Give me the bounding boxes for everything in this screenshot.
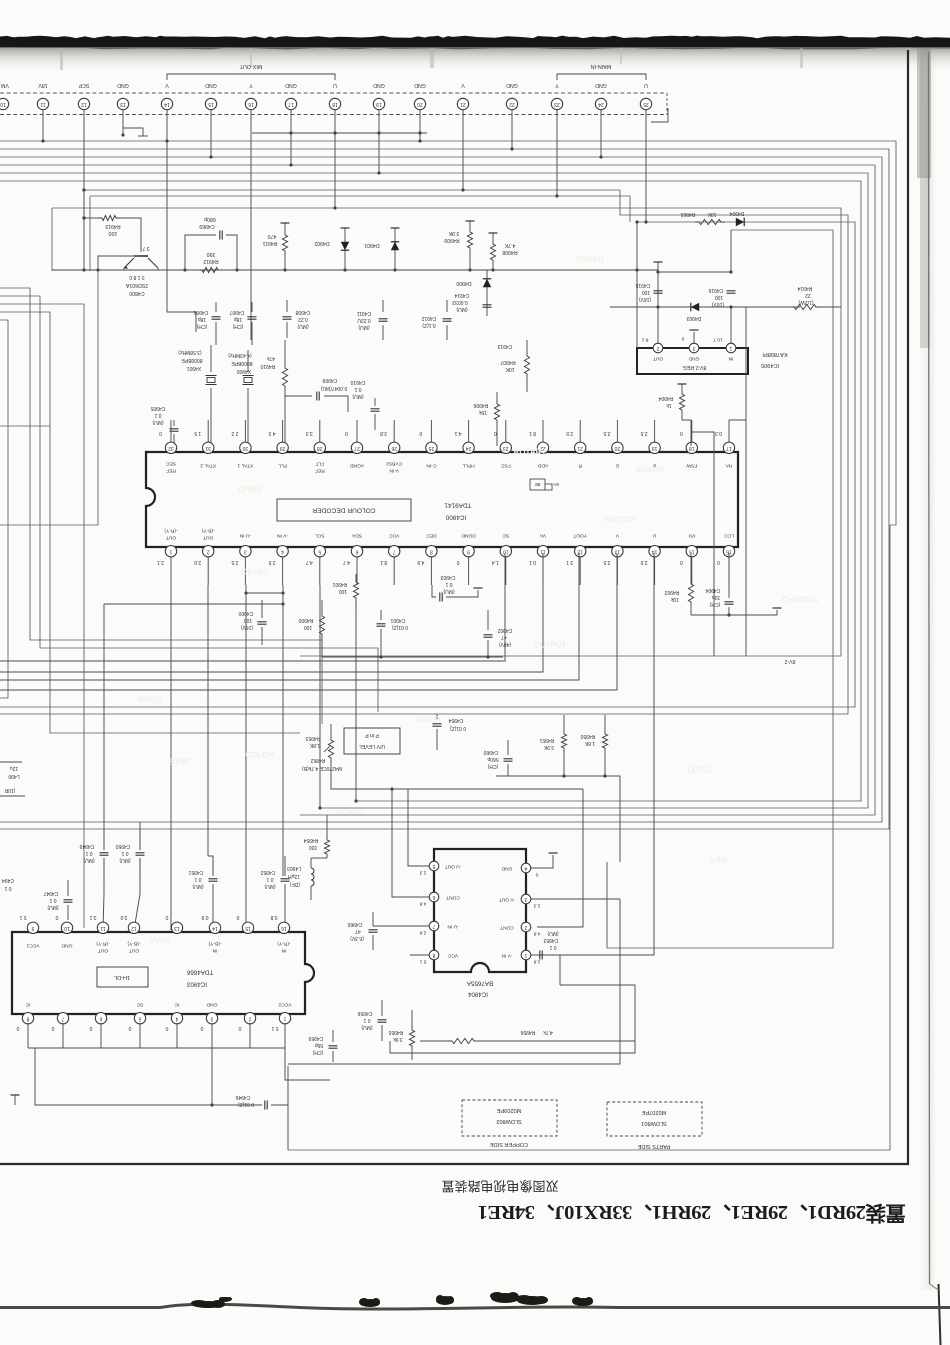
svg-text:4.8: 4.8	[533, 931, 540, 937]
svg-text:IC: IC	[174, 1002, 179, 1008]
svg-text:(MU): (MU)	[47, 904, 58, 910]
svg-text:0.1(Z): 0.1(Z)	[422, 322, 436, 328]
svg-text:0.3: 0.3	[715, 430, 722, 436]
svg-text:8: 8	[430, 548, 433, 554]
svg-text:-(R-Y): -(R-Y)	[164, 528, 178, 534]
svg-text:M4270CE 4.7k(B): M4270CE 4.7k(B)	[302, 765, 342, 771]
svg-text:双图像电视电路装置: 双图像电视电路装置	[441, 1179, 558, 1194]
svg-text:6: 6	[432, 894, 435, 900]
svg-text:GND: GND	[688, 356, 699, 362]
svg-text:2.0: 2.0	[194, 559, 201, 565]
svg-text:10K: 10K	[505, 366, 515, 372]
svg-text:DGND: DGND	[461, 533, 476, 539]
svg-text:0: 0	[535, 872, 538, 878]
svg-text:(MU): (MU)	[297, 323, 308, 329]
svg-text:(MU): (MU)	[264, 883, 275, 889]
svg-text:0.1: 0.1	[354, 386, 361, 392]
svg-text:0: 0	[419, 430, 422, 436]
svg-text:13: 13	[120, 101, 126, 107]
svg-text:3.9K: 3.9K	[448, 230, 459, 236]
svg-text:8000BPE: 8000BPE	[181, 357, 203, 363]
svg-text:18p: 18p	[198, 316, 207, 322]
svg-text:SIGNAL: SIGNAL	[335, 808, 365, 817]
svg-text:7: 7	[61, 1015, 64, 1021]
svg-text:V: V	[461, 82, 465, 88]
svg-text:18p: 18p	[234, 316, 243, 322]
svg-text:0 01(Z): 0 01(Z)	[392, 624, 408, 630]
svg-text:R4911: R4911	[262, 240, 277, 246]
svg-text:11: 11	[100, 925, 105, 931]
svg-text:R4904: R4904	[658, 395, 673, 401]
svg-text:0: 0	[681, 336, 684, 342]
svg-text:10K: 10K	[707, 211, 717, 217]
svg-text:IC4904: IC4904	[467, 991, 488, 998]
svg-text:100: 100	[642, 289, 651, 295]
svg-text:0: 0	[236, 914, 239, 920]
svg-text:1: 1	[169, 548, 172, 554]
svg-text:0 1: 0 1	[549, 944, 556, 950]
svg-text:FSW: FSW	[686, 463, 697, 469]
svg-text:3.0: 3.0	[120, 914, 127, 920]
svg-text:D4903: D4903	[686, 315, 701, 321]
svg-text:VCC1: VCC1	[26, 943, 39, 949]
svg-text:32: 32	[168, 445, 174, 451]
svg-text:SWITCH: SWITCH	[604, 516, 636, 525]
svg-text:28: 28	[317, 445, 323, 451]
svg-text:4: 4	[281, 548, 284, 554]
svg-text:C4951: C4951	[188, 869, 203, 875]
svg-text:2: 2	[248, 1015, 251, 1021]
svg-text:29: 29	[280, 445, 286, 451]
svg-text:(MU): (MU)	[192, 883, 203, 889]
svg-text:C4800: C4800	[129, 290, 144, 296]
svg-text:100: 100	[715, 294, 724, 300]
svg-text:2: 2	[656, 345, 659, 351]
svg-text:R4902: R4902	[664, 589, 679, 595]
svg-text:8: 8	[432, 952, 435, 958]
svg-text:VIDEO: VIDEO	[138, 696, 163, 705]
svg-text:680p: 680p	[204, 216, 216, 222]
svg-text:COLOUR DECODER: COLOUR DECODER	[312, 507, 375, 514]
svg-text:0 1: 0 1	[445, 581, 452, 587]
svg-text:0: 0	[165, 1025, 168, 1031]
svg-text:REF: REF	[315, 468, 325, 474]
svg-text:2.3: 2.3	[533, 903, 540, 909]
svg-text:3.3: 3.3	[306, 430, 313, 436]
svg-text:0.8: 0.8	[270, 914, 277, 920]
svg-text:SEC: SEC	[166, 461, 177, 467]
svg-text:XTAL 1: XTAL 1	[237, 463, 253, 469]
svg-text:8A: 8A	[552, 482, 559, 487]
svg-text:0: 0	[238, 1025, 241, 1031]
svg-text:0: 0	[680, 559, 683, 565]
svg-text:LCC: LCC	[724, 533, 734, 539]
svg-text:R4862: R4862	[310, 757, 325, 763]
svg-text:3.1: 3.1	[89, 914, 96, 920]
svg-text:SLDW801: SLDW801	[641, 1120, 667, 1126]
svg-text:0: 0	[680, 430, 683, 436]
svg-text:2.5: 2.5	[603, 559, 610, 565]
svg-text:16: 16	[248, 101, 254, 107]
svg-text:3: 3	[210, 1015, 213, 1021]
svg-text:R4953: R4953	[305, 735, 320, 741]
svg-text:(1/2W): (1/2W)	[798, 299, 813, 305]
svg-text:0.22U: 0.22U	[357, 317, 371, 323]
svg-text:AGND: AGND	[349, 463, 364, 469]
svg-text:V: V	[165, 82, 169, 88]
svg-text:X4901: X4901	[187, 365, 202, 371]
svg-text:1 5: 1 5	[194, 430, 201, 436]
svg-text:3: 3	[692, 345, 695, 351]
svg-text:0: 0	[717, 559, 720, 565]
svg-text:10: 10	[64, 925, 70, 931]
svg-text:5 1: 5 1	[271, 1025, 278, 1031]
svg-text:OUTPUT: OUTPUT	[534, 641, 567, 650]
svg-text:0 1: 0 1	[266, 876, 273, 882]
svg-text:(MU): (MU)	[152, 419, 163, 425]
svg-text:R4954: R4954	[303, 837, 318, 843]
svg-text:TUNER: TUNER	[576, 256, 604, 265]
svg-text:U: U	[652, 533, 656, 539]
svg-text:3.9K: 3.9K	[543, 744, 554, 750]
svg-text:8000BPE: 8000BPE	[231, 360, 253, 366]
svg-text:(MU): (MU)	[547, 930, 558, 936]
svg-text:MIX-OUT: MIX-OUT	[239, 63, 262, 69]
svg-text:8 1: 8 1	[641, 337, 648, 343]
svg-text:0: 0	[128, 1025, 131, 1031]
svg-text:R4908: R4908	[502, 249, 517, 255]
svg-text:0.9: 0.9	[201, 914, 208, 920]
svg-text:4: 4	[524, 865, 527, 871]
svg-text:31: 31	[205, 445, 211, 451]
svg-text:4.1: 4.1	[454, 430, 461, 436]
svg-text:R4906: R4906	[473, 402, 488, 408]
svg-text:VM: VM	[1, 82, 9, 88]
svg-text:2 2: 2 2	[231, 430, 238, 436]
svg-text:8V-2: 8V-2	[784, 658, 795, 664]
svg-text:2.5: 2.5	[268, 559, 275, 565]
svg-text:0.1: 0.1	[529, 559, 536, 565]
svg-text:TDA4666: TDA4666	[186, 969, 213, 976]
svg-text:C4949: C4949	[79, 843, 94, 849]
svg-text:25: 25	[643, 101, 649, 107]
svg-text:26: 26	[391, 445, 397, 451]
svg-text:14: 14	[652, 548, 658, 554]
svg-text:2SD601A: 2SD601A	[125, 282, 148, 288]
svg-text:3: 3	[244, 548, 247, 554]
svg-text:FLT: FLT	[316, 461, 324, 467]
svg-text:8.1: 8.1	[380, 559, 387, 565]
svg-text:(16V): (16V)	[639, 296, 652, 302]
svg-text:IN: IN	[212, 948, 217, 954]
svg-text:DEC: DEC	[426, 533, 437, 539]
svg-text:5: 5	[432, 863, 435, 869]
svg-text:GND: GND	[285, 82, 297, 88]
svg-text:8V-2.REG.: 8V-2.REG.	[682, 364, 707, 370]
svg-text:U/V LEVEL: U/V LEVEL	[359, 743, 385, 749]
svg-text:4.8: 4.8	[419, 901, 426, 907]
svg-text:(DF): (DF)	[290, 881, 300, 887]
svg-text:16: 16	[281, 925, 287, 931]
svg-text:15: 15	[208, 101, 214, 107]
svg-text:SC: SC	[502, 533, 509, 539]
svg-text:4.7: 4.7	[343, 559, 350, 565]
svg-text:IN: IN	[281, 948, 286, 954]
svg-text:1: 1	[524, 952, 527, 958]
svg-text:SLDW802: SLDW802	[496, 1118, 522, 1124]
svg-text:5 1: 5 1	[19, 914, 26, 920]
svg-text:GND: GND	[501, 866, 512, 872]
svg-text:-U OUT: -U OUT	[445, 864, 462, 870]
svg-text:15k: 15k	[478, 409, 487, 415]
svg-text:G: G	[615, 463, 619, 469]
svg-text:R4907: R4907	[500, 359, 515, 365]
svg-text:C4952: C4952	[260, 869, 275, 875]
svg-text:3 7: 3 7	[142, 245, 149, 251]
svg-text:REF: REF	[166, 468, 176, 474]
svg-text:C4953: C4953	[543, 937, 558, 943]
svg-text:(6.3V): (6.3V)	[350, 935, 364, 941]
svg-text:(MU): (MU)	[443, 588, 454, 594]
svg-text:0.22: 0.22	[298, 316, 308, 322]
svg-text:17: 17	[726, 445, 732, 451]
svg-text:ADD: ADD	[537, 463, 548, 469]
svg-text:C4903: C4903	[440, 574, 455, 580]
svg-text:7: 7	[432, 923, 435, 929]
svg-text:6: 6	[355, 548, 358, 554]
svg-text:2.5: 2.5	[566, 430, 573, 436]
svg-text:8: 8	[26, 1015, 29, 1021]
svg-text:D4902: D4902	[314, 240, 329, 246]
svg-text:-V IN: -V IN	[501, 953, 512, 959]
svg-text:BOARD: BOARD	[635, 466, 665, 475]
svg-text:DELAY: DELAY	[242, 568, 269, 577]
svg-text:4 3: 4 3	[268, 430, 275, 436]
svg-text:21: 21	[577, 445, 583, 451]
svg-text:10k: 10k	[670, 596, 679, 602]
svg-text:8E: 8E	[535, 482, 541, 487]
svg-text:SYNC: SYNC	[169, 758, 191, 767]
svg-text:U: U	[333, 82, 337, 88]
svg-text:SCP: SCP	[78, 82, 89, 88]
svg-text:IC4905: IC4905	[761, 362, 779, 368]
svg-text:10: 10	[0, 101, 6, 107]
svg-text:(16V): (16V)	[241, 624, 254, 630]
svg-text:18: 18	[689, 445, 695, 451]
svg-text:470: 470	[268, 233, 277, 239]
svg-text:IC4903: IC4903	[186, 981, 207, 988]
svg-text:9: 9	[31, 925, 34, 931]
svg-text:19: 19	[652, 445, 658, 451]
svg-text:1.4: 1.4	[492, 559, 499, 565]
svg-text:-V IN: -V IN	[277, 533, 289, 539]
svg-text:0.0047(MU): 0.0047(MU)	[320, 385, 347, 391]
svg-text:-V OUT: -V OUT	[499, 897, 515, 903]
svg-text:M0209PE: M0209PE	[496, 1107, 521, 1113]
svg-text:C4954: C4954	[448, 717, 463, 723]
svg-text:C4915: C4915	[635, 282, 650, 288]
svg-text:0: 0	[165, 914, 168, 920]
svg-text:VCC2: VCC2	[278, 1002, 291, 1008]
svg-text:-U IN: -U IN	[447, 924, 459, 930]
svg-text:1.8K: 1.8K	[584, 740, 595, 746]
svg-text:56p: 56p	[315, 1042, 324, 1048]
svg-text:OUT: OUT	[98, 948, 108, 954]
svg-text:0: 0	[55, 914, 58, 920]
svg-text:GND: GND	[206, 1002, 217, 1008]
svg-text:IC: IC	[25, 1002, 30, 1008]
svg-text:R4950: R4950	[580, 733, 595, 739]
svg-text:C4956: C4956	[357, 1010, 372, 1016]
svg-text:(10R: (10R	[4, 787, 15, 793]
svg-text:VA: VA	[539, 533, 546, 539]
svg-text:GND: GND	[414, 82, 426, 88]
svg-text:47: 47	[355, 928, 361, 934]
svg-text:1.8K: 1.8K	[309, 742, 320, 748]
svg-text:P in P: P in P	[365, 732, 379, 738]
svg-text:VCC: VCC	[389, 533, 400, 539]
svg-text:33p: 33p	[712, 594, 721, 600]
svg-text:SCL: SCL	[315, 533, 325, 539]
svg-text:BA7655A: BA7655A	[466, 980, 493, 987]
svg-text:TDA9141: TDA9141	[444, 502, 471, 509]
svg-text:CONT: CONT	[446, 895, 460, 901]
svg-text:C4905: C4905	[150, 405, 165, 411]
svg-text:8 1: 8 1	[529, 430, 536, 436]
svg-text:0 1: 0 1	[49, 897, 56, 903]
svg-text:18V: 18V	[38, 82, 48, 88]
svg-text:0: 0	[345, 430, 348, 436]
svg-text:(16V): (16V)	[712, 301, 725, 307]
svg-text:15: 15	[245, 925, 251, 931]
svg-text:KA7808PI: KA7808PI	[762, 351, 788, 357]
svg-text:5: 5	[318, 548, 321, 554]
svg-text:12: 12	[81, 101, 87, 107]
svg-text:CVBS2: CVBS2	[386, 461, 402, 467]
svg-text:1: 1	[283, 1015, 286, 1021]
svg-text:20: 20	[614, 445, 620, 451]
svg-text:1k: 1k	[666, 402, 672, 408]
svg-text:2.5: 2.5	[640, 430, 647, 436]
svg-text:GND: GND	[373, 82, 385, 88]
svg-text:SDA: SDA	[351, 533, 362, 539]
svg-text:R4909: R4909	[444, 237, 459, 243]
svg-text:C4910: C4910	[350, 379, 365, 385]
svg-text:R: R	[578, 463, 582, 469]
svg-text:R4912: R4912	[203, 258, 218, 264]
svg-text:VCC: VCC	[447, 953, 458, 959]
svg-text:(CH): (CH)	[196, 323, 207, 329]
svg-text:OHMS: OHMS	[238, 486, 263, 495]
svg-text:C4911: C4911	[357, 310, 372, 316]
svg-text:(MU): (MU)	[352, 393, 363, 399]
svg-text:330: 330	[309, 844, 318, 850]
svg-text:-(B-Y): -(B-Y)	[127, 941, 140, 947]
svg-text:3 1: 3 1	[566, 559, 573, 565]
svg-text:4.7k: 4.7k	[543, 1029, 553, 1035]
svg-text:12: 12	[577, 548, 583, 554]
svg-text:25: 25	[428, 445, 434, 451]
svg-text:0: 0	[16, 1025, 19, 1031]
svg-text:(4.43MHz): (4.43MHz)	[228, 352, 252, 358]
svg-text:0.1: 0.1	[154, 412, 161, 418]
svg-text:R4965: R4965	[680, 211, 695, 217]
svg-text:14: 14	[164, 101, 170, 107]
svg-text:-(R-Y): -(R-Y)	[277, 941, 291, 947]
svg-text:-(B-Y): -(B-Y)	[208, 941, 221, 947]
svg-text:0 01(Z): 0 01(Z)	[450, 725, 466, 731]
svg-text:L4903: L4903	[287, 865, 301, 871]
svg-text:0 1: 0 1	[194, 876, 201, 882]
svg-text:OUT: OUT	[166, 535, 176, 541]
svg-text:100: 100	[244, 617, 253, 623]
svg-text:30: 30	[242, 445, 248, 451]
svg-text:0 1: 0 1	[363, 1017, 370, 1023]
svg-text:2.5: 2.5	[603, 430, 610, 436]
svg-text:4.7: 4.7	[306, 559, 313, 565]
svg-text:GND: GND	[506, 82, 518, 88]
svg-text:C4909: C4909	[322, 377, 337, 383]
svg-text:0.0033: 0.0033	[452, 299, 468, 305]
svg-text:R4956: R4956	[520, 1029, 535, 1035]
svg-text:CONT: CONT	[500, 925, 514, 931]
svg-text:C4906: C4906	[193, 309, 208, 315]
svg-text:1H-DL: 1H-DL	[114, 974, 130, 980]
svg-text:C4916: C4916	[708, 287, 723, 293]
svg-text:C4907: C4907	[229, 309, 244, 315]
svg-text:(CH): (CH)	[487, 763, 498, 769]
svg-text:(MU): (MU)	[358, 324, 369, 330]
svg-text:R4901: R4901	[332, 581, 347, 587]
svg-text:LEVEL: LEVEL	[687, 766, 713, 775]
svg-text:C4966: C4966	[347, 921, 362, 927]
svg-text:0: 0	[494, 430, 497, 436]
svg-text:HPLL: HPLL	[462, 463, 475, 469]
svg-text:0 01(Z): 0 01(Z)	[238, 1101, 254, 1107]
svg-text:GND: GND	[595, 82, 607, 88]
svg-text:0 1: 0 1	[85, 850, 92, 856]
svg-text:YOUT: YOUT	[573, 533, 587, 539]
svg-text:21: 21	[460, 101, 466, 107]
svg-text:OUT: OUT	[129, 948, 139, 954]
svg-text:GND: GND	[117, 82, 129, 88]
svg-text:(CH): (CH)	[312, 1049, 323, 1055]
svg-text:R4913: R4913	[105, 223, 120, 229]
svg-text:5: 5	[138, 1015, 141, 1021]
svg-text:(MU): (MU)	[119, 857, 130, 863]
svg-text:PLL: PLL	[278, 463, 287, 469]
svg-text:4.7K: 4.7K	[504, 242, 515, 248]
svg-text:C4947: C4947	[43, 890, 58, 896]
svg-text:0: 0	[89, 1025, 92, 1031]
svg-text:C4914: C4914	[454, 292, 469, 298]
svg-text:Y: Y	[555, 82, 559, 88]
svg-text:COPPER SIDE: COPPER SIDE	[490, 1141, 529, 1147]
svg-text:U: U	[644, 82, 648, 88]
svg-text:PARTS SIDE: PARTS SIDE	[637, 1143, 670, 1149]
svg-text:R4951: R4951	[539, 737, 554, 743]
svg-text:4.9: 4.9	[417, 559, 424, 565]
svg-text:2: 2	[207, 548, 210, 554]
svg-text:C4959: C4959	[308, 1035, 323, 1041]
svg-text:C494: C494	[2, 877, 14, 883]
svg-text:C4946: C4946	[235, 1094, 250, 1100]
svg-text:4: 4	[175, 1015, 178, 1021]
svg-text:2.5: 2.5	[231, 559, 238, 565]
svg-text:0: 0	[159, 430, 162, 436]
svg-text:2.1: 2.1	[157, 559, 164, 565]
svg-text:17: 17	[288, 101, 294, 107]
